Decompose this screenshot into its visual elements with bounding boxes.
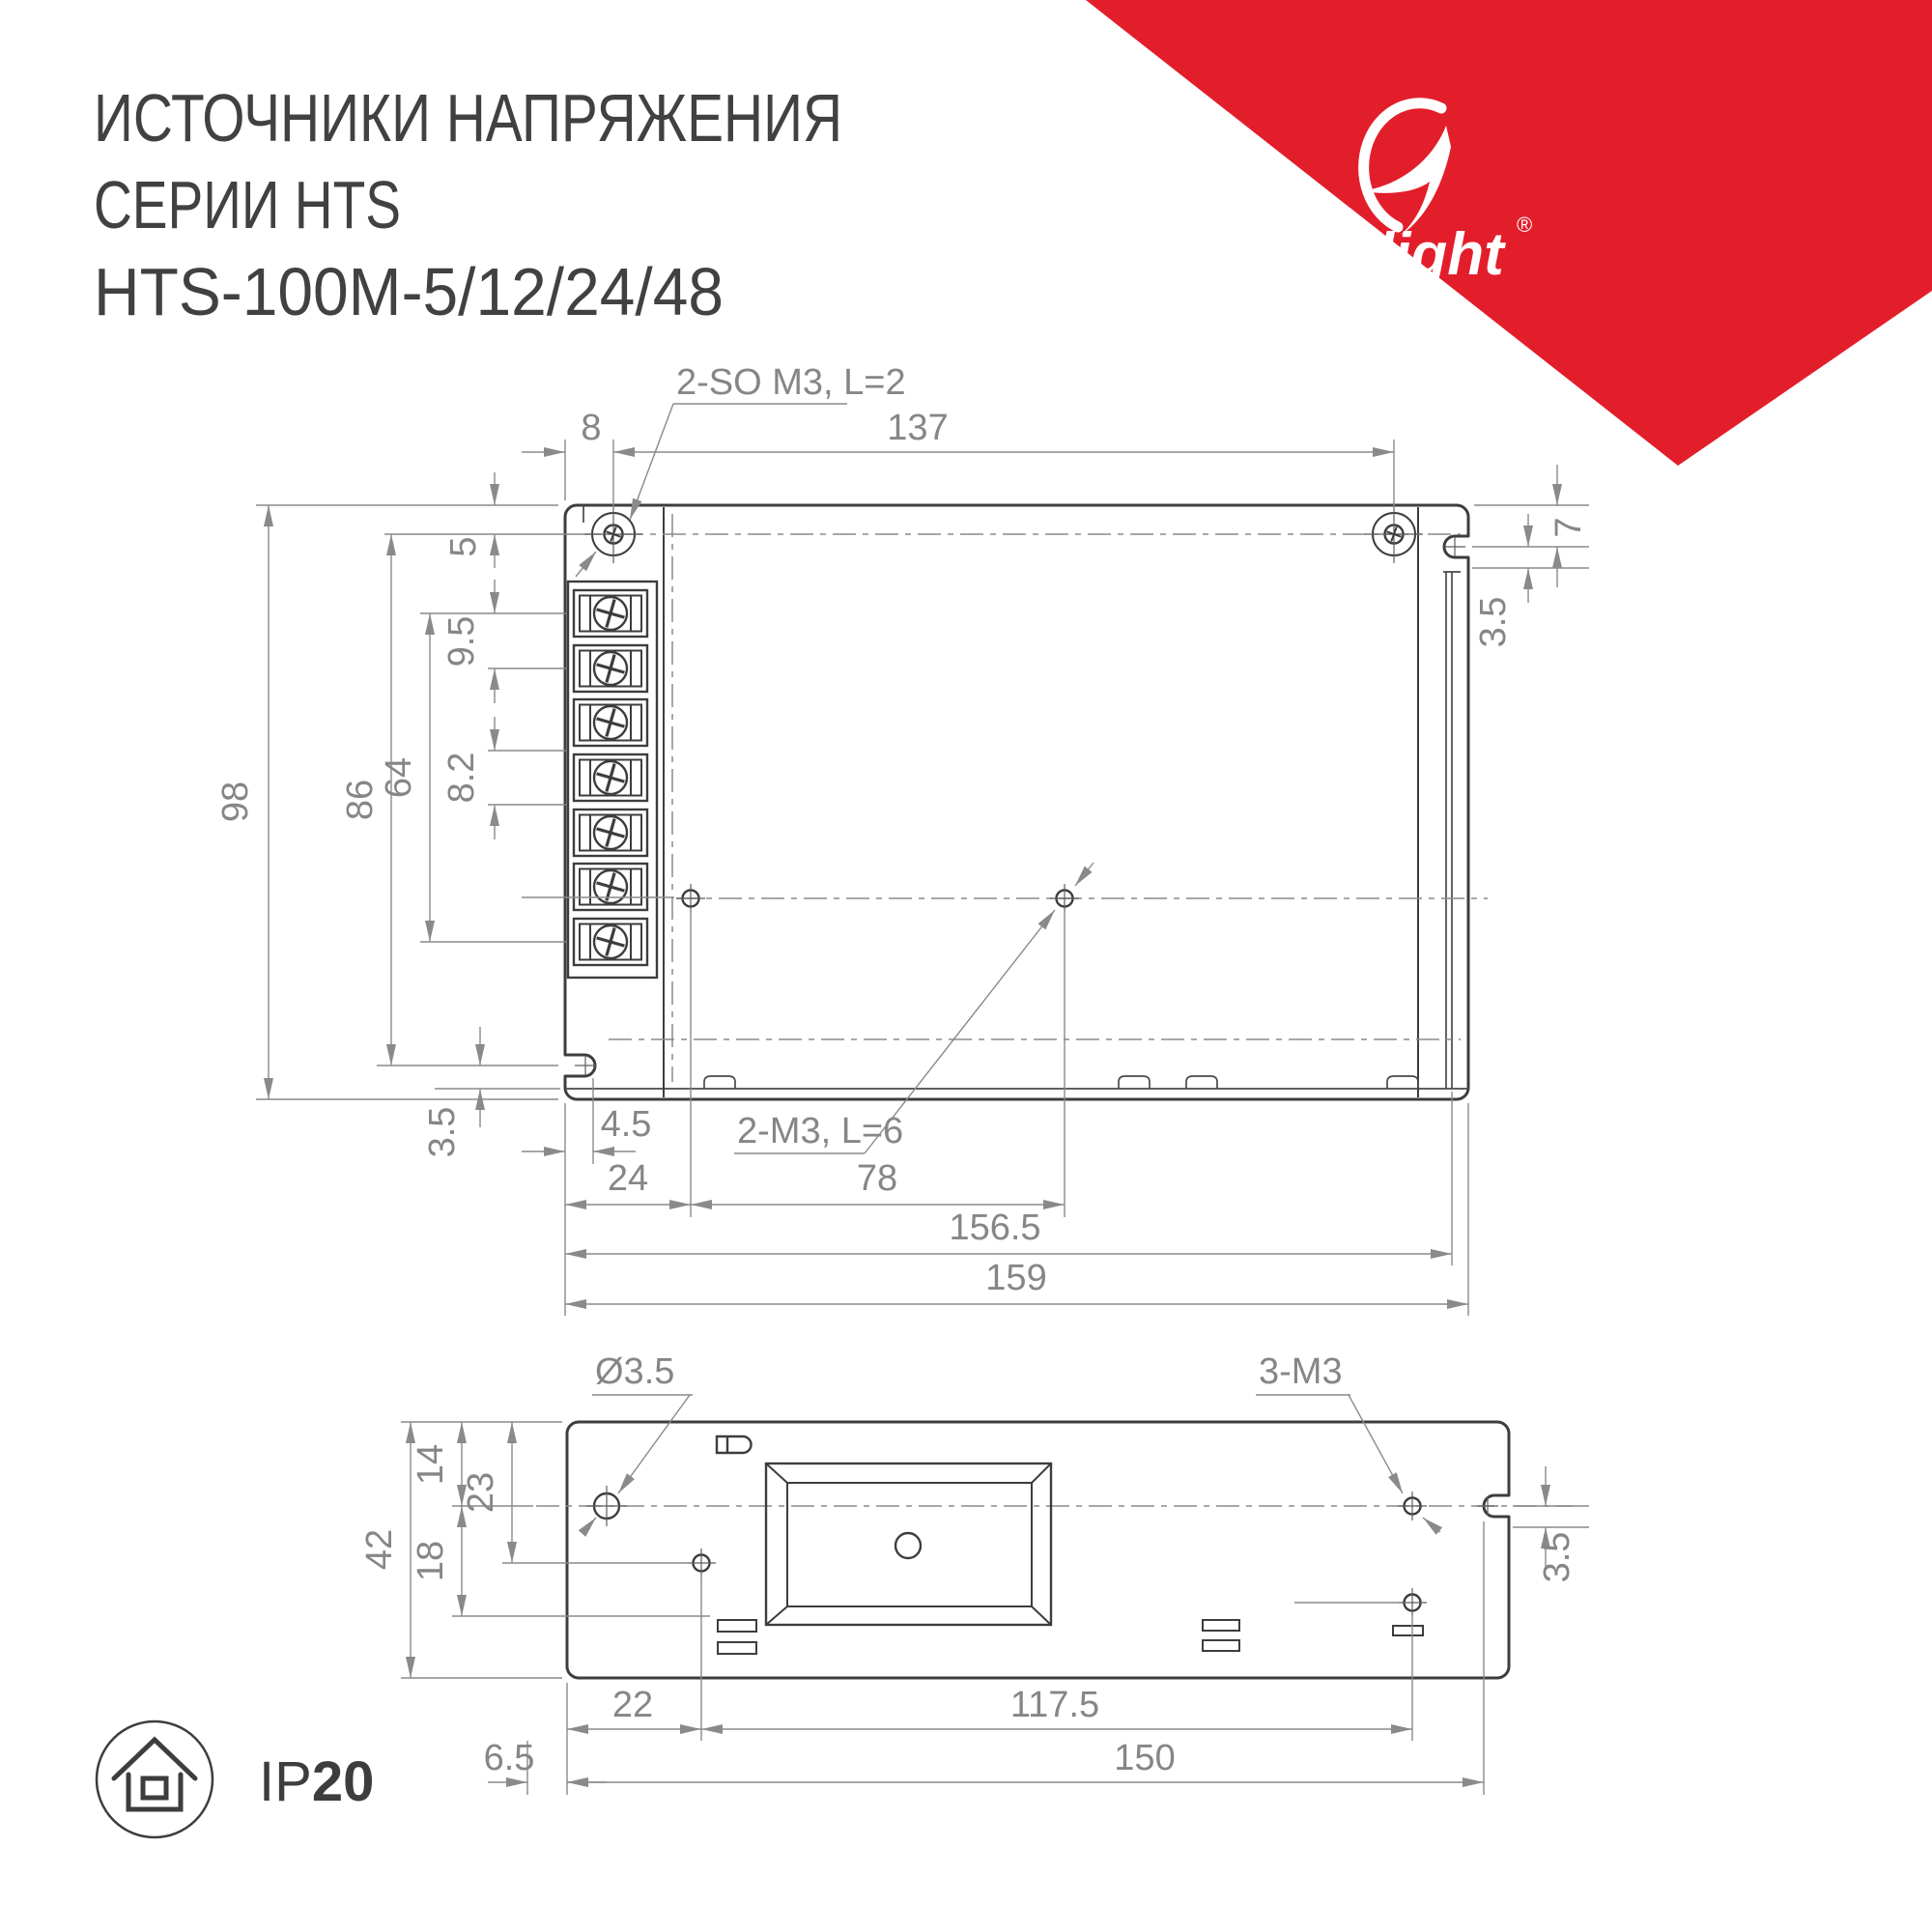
terminal-2 <box>574 645 647 692</box>
dim-label-156-5: 156.5 <box>949 1207 1040 1248</box>
ip-rating-prefix: IP <box>259 1750 312 1813</box>
dim-label-24: 24 <box>608 1158 648 1199</box>
mount-hole-3-5 <box>586 1486 627 1526</box>
brand-wordmark: arlight <box>1321 221 1506 288</box>
callout-bottom-holes: 3-M3 <box>1259 1351 1343 1392</box>
vent-slot-left-1 <box>718 1620 756 1632</box>
vent-slot-right-2 <box>1203 1640 1239 1651</box>
terminal-3 <box>574 699 647 746</box>
top-view-extension-lines <box>256 440 1589 1316</box>
terminal-1 <box>574 590 647 637</box>
terminal-block <box>568 582 657 978</box>
ip-badge: IP20 <box>97 1721 374 1837</box>
dim-label-3-5-left: 3.5 <box>422 1107 463 1158</box>
dim-label-9-5: 9.5 <box>441 616 482 668</box>
bottom-vent-bump-2 <box>1119 1076 1150 1089</box>
side-hole-right <box>1050 884 1079 913</box>
dim-label-8: 8 <box>581 408 601 448</box>
terminal-7 <box>574 919 647 965</box>
dim-label-3-5-right: 3.5 <box>1473 597 1514 648</box>
bottom-view-extension-lines <box>401 1422 1589 1795</box>
callout-top-holes: 2-M3, L=6 <box>737 1111 903 1151</box>
dim-label-18: 18 <box>411 1541 451 1581</box>
top-view-callout-leaders <box>576 404 1094 1153</box>
vent-slot-corner <box>1393 1626 1423 1635</box>
bottom-vent-bump-4 <box>1387 1076 1418 1089</box>
bottom-vent-bump-1 <box>704 1076 735 1089</box>
callout-top-screws: 2-SO M3, L=2 <box>676 362 906 403</box>
terminal-5 <box>574 810 647 856</box>
dim-label-7: 7 <box>1548 517 1589 537</box>
dim-label-42: 42 <box>359 1529 400 1570</box>
dim-label-23: 23 <box>461 1472 501 1513</box>
bottom-view-drawing: 42 14 18 23 3.5 22 117.5 6.5 150 Ø3.5 3-… <box>359 1351 1589 1795</box>
top-view-drawing: 8 137 5 9.5 8.2 64 86 98 3.5 7 3.5 4.5 2… <box>215 362 1589 1316</box>
callout-bottom-hole-diameter: Ø3.5 <box>595 1351 674 1392</box>
ip-rating: IP20 <box>259 1750 374 1813</box>
dim-label-6-5: 6.5 <box>484 1738 535 1778</box>
vent-slot-right-1 <box>1203 1620 1239 1631</box>
top-view-body-outline <box>565 505 1468 1099</box>
dim-label-150: 150 <box>1114 1738 1175 1778</box>
side-hole-left <box>676 884 705 913</box>
dim-label-159: 159 <box>985 1258 1046 1298</box>
recess-center-hole <box>895 1533 921 1558</box>
vent-slot-left-2 <box>718 1642 756 1654</box>
mount-hole-m3-lower <box>1398 1588 1427 1617</box>
bottom-vent-bump-3 <box>1186 1076 1217 1089</box>
terminal-6 <box>574 864 647 910</box>
technical-drawing: ИСТОЧНИКИ НАПРЯЖЕНИЯ СЕРИИ HTS HTS-100M-… <box>0 0 1932 1932</box>
dim-label-117-5: 117.5 <box>1010 1685 1099 1725</box>
dim-label-22: 22 <box>612 1685 653 1725</box>
dim-label-4-5: 4.5 <box>601 1104 652 1145</box>
page-title-line2: СЕРИИ HTS <box>94 167 401 242</box>
top-vent-slot <box>717 1436 752 1453</box>
dim-label-137: 137 <box>887 408 948 448</box>
dim-label-98: 98 <box>215 781 256 822</box>
brand-triangle <box>1086 0 1932 466</box>
ip-rating-value: 20 <box>312 1750 375 1813</box>
label-recess <box>766 1463 1051 1625</box>
bottom-view-body-outline <box>567 1422 1509 1678</box>
dim-label-78: 78 <box>857 1158 897 1199</box>
dim-label-64: 64 <box>379 757 419 798</box>
dim-label-8-2: 8.2 <box>441 753 482 804</box>
brand-corner: arlight ® <box>1086 0 1932 466</box>
mount-hole-m3-right <box>1398 1492 1427 1520</box>
terminal-4 <box>574 754 647 801</box>
page-title-line1: ИСТОЧНИКИ НАПРЯЖЕНИЯ <box>94 80 842 156</box>
dim-label-86: 86 <box>340 780 381 820</box>
top-view-dimension-lines <box>269 452 1557 1304</box>
dim-label-3-5-bottom: 3.5 <box>1537 1532 1577 1583</box>
bottom-right-notch-mark <box>1477 1496 1498 1516</box>
dim-label-5: 5 <box>443 536 484 556</box>
dim-label-14: 14 <box>411 1444 451 1485</box>
cover-screw-right <box>1365 505 1423 563</box>
mount-hole-m3-left <box>687 1548 716 1577</box>
page-title-line3: HTS-100M-5/12/24/48 <box>94 254 724 329</box>
house-icon <box>114 1740 195 1809</box>
header: ИСТОЧНИКИ НАПРЯЖЕНИЯ СЕРИИ HTS HTS-100M-… <box>94 80 842 329</box>
page: ИСТОЧНИКИ НАПРЯЖЕНИЯ СЕРИИ HTS HTS-100M-… <box>0 0 1932 1932</box>
brand-registered-mark: ® <box>1517 213 1532 237</box>
